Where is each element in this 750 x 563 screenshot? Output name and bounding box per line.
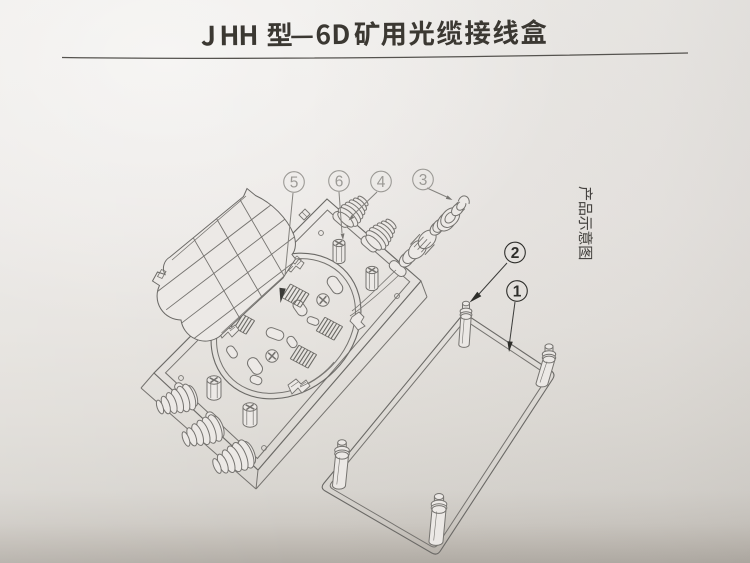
svg-text:2: 2 xyxy=(511,245,520,262)
svg-text:6: 6 xyxy=(335,173,344,190)
svg-text:4: 4 xyxy=(377,174,386,191)
svg-text:1: 1 xyxy=(513,283,522,300)
svg-text:3: 3 xyxy=(419,172,428,189)
svg-text:5: 5 xyxy=(290,174,299,191)
